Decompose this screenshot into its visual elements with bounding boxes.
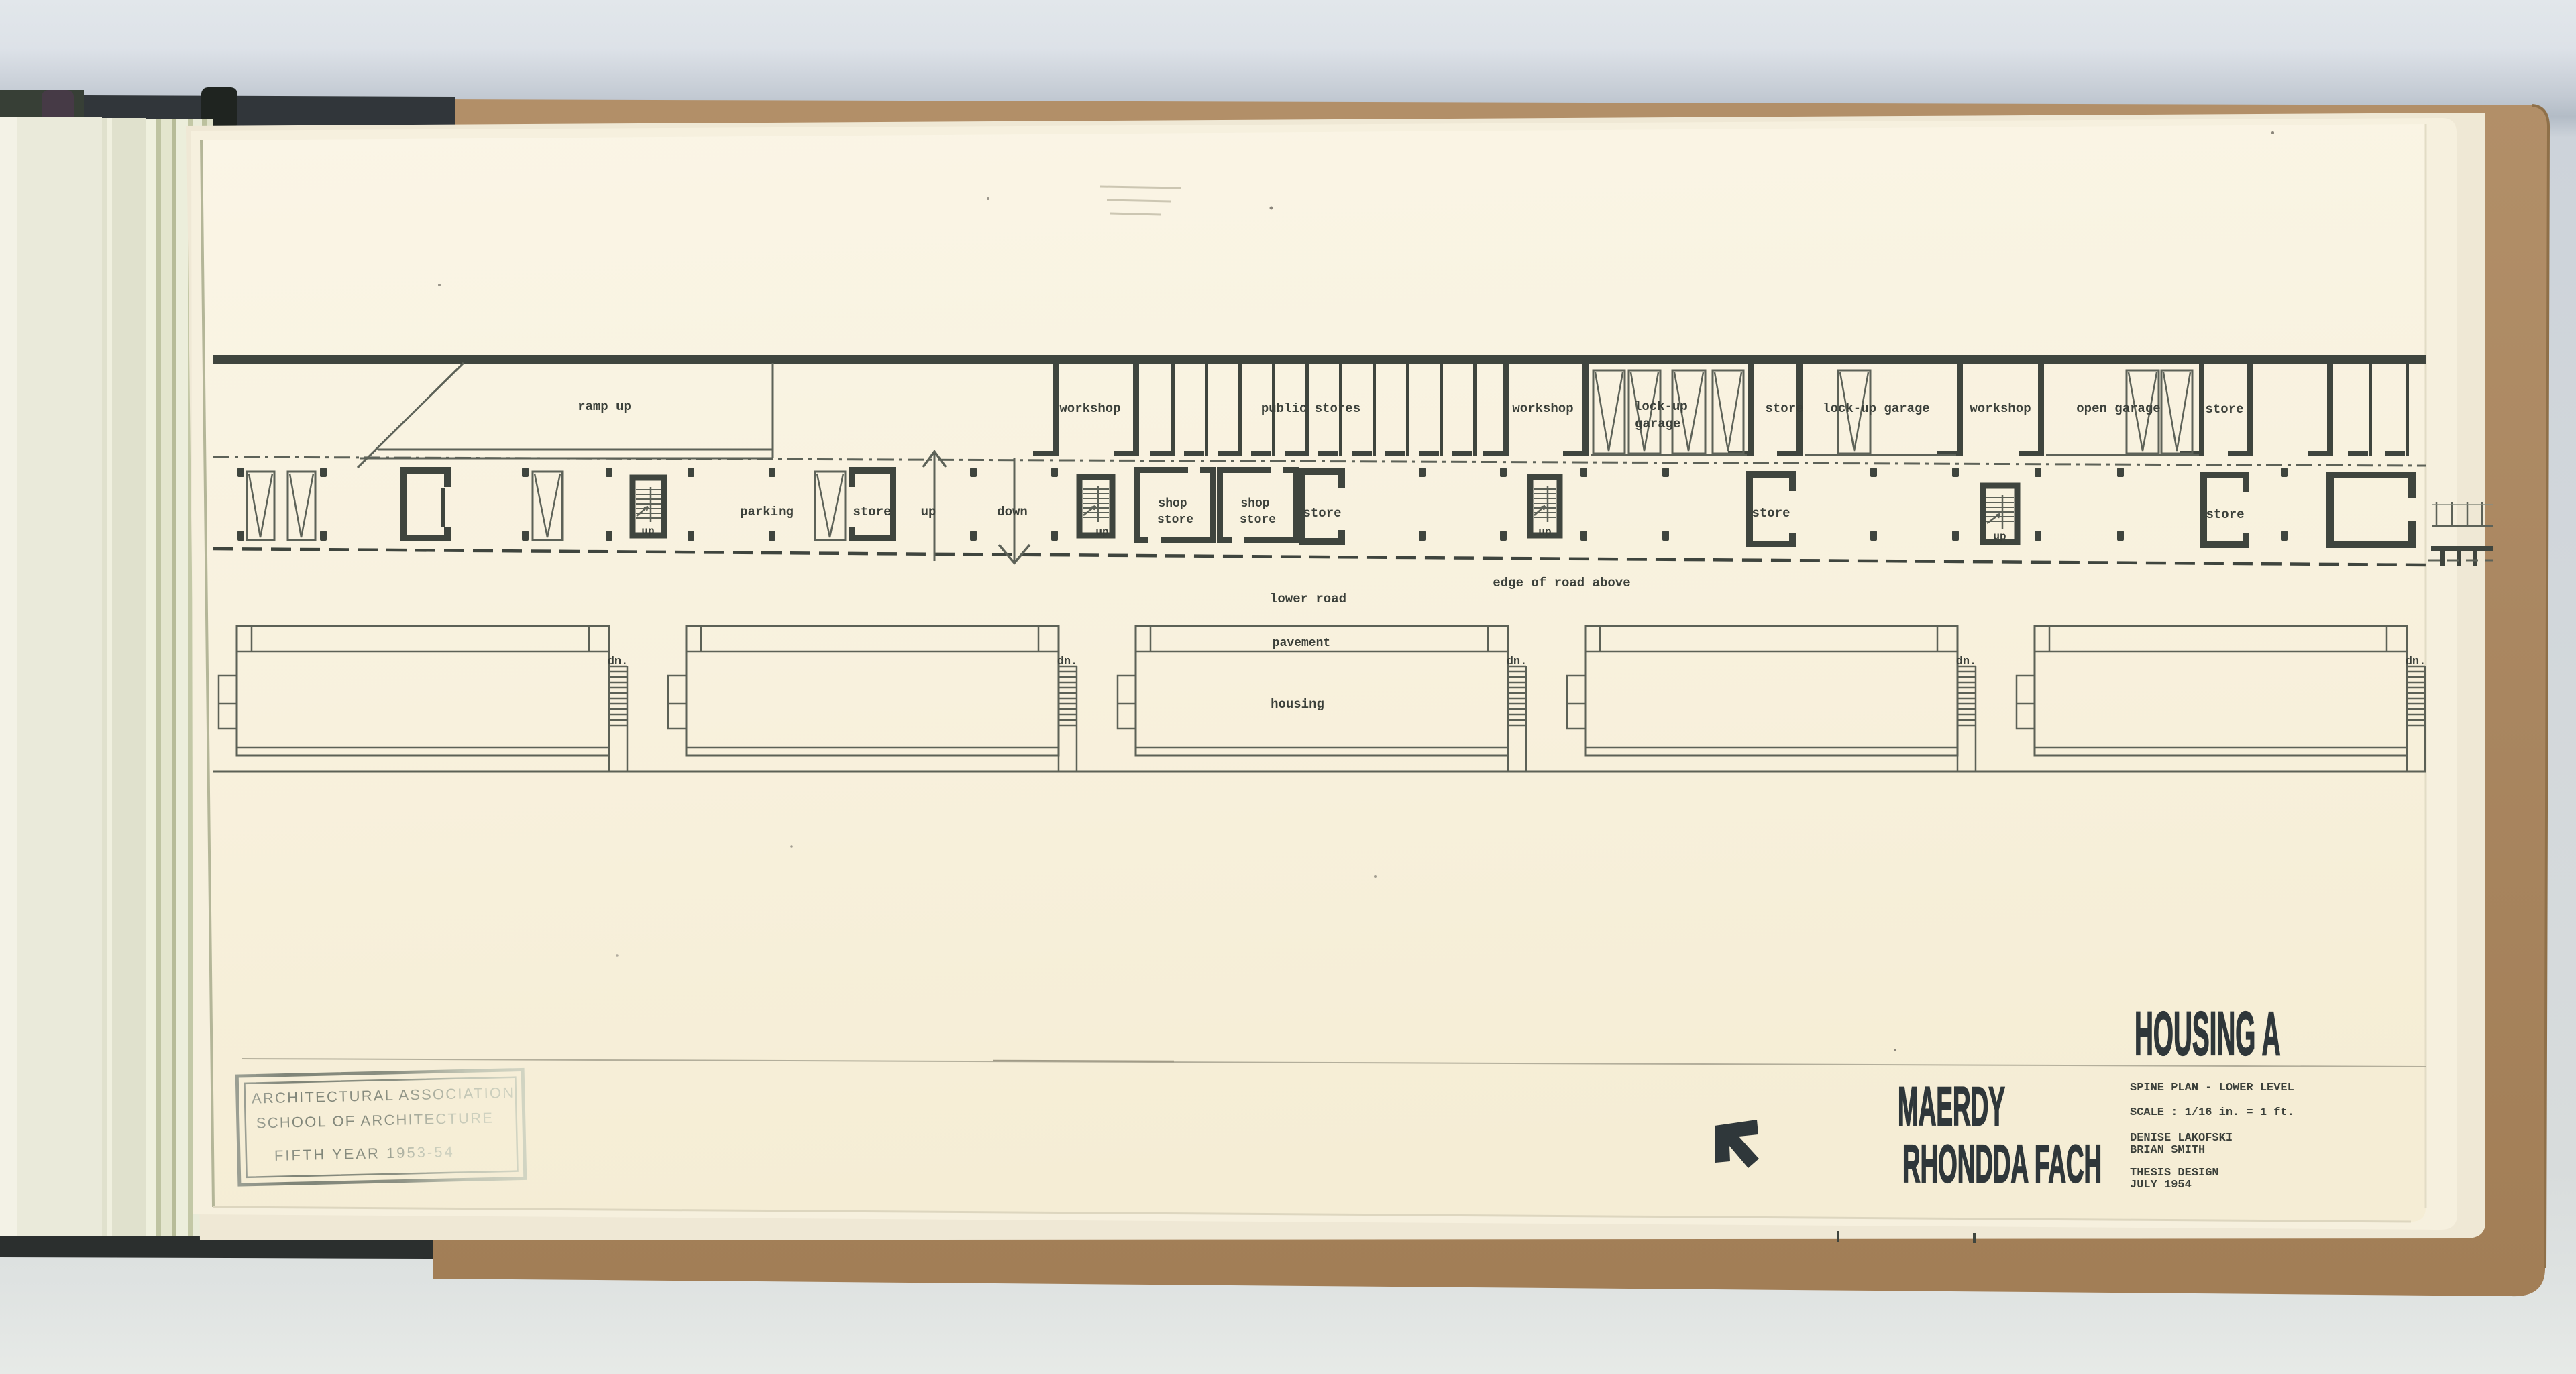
svg-text:store: store	[1765, 401, 1803, 416]
svg-text:dn.: dn.	[608, 655, 629, 668]
svg-text:pavement: pavement	[1273, 637, 1330, 650]
svg-text:open garage: open garage	[2076, 401, 2160, 416]
svg-text:up: up	[921, 505, 936, 519]
svg-text:up: up	[1095, 526, 1108, 538]
svg-text:dn.: dn.	[1956, 655, 1977, 668]
svg-text:lock-up: lock-up	[1634, 399, 1688, 414]
svg-text:store: store	[1752, 506, 1790, 521]
svg-text:ramp up: ramp up	[578, 399, 631, 414]
svg-text:DENISE LAKOFSKI: DENISE LAKOFSKI	[2130, 1132, 2233, 1145]
svg-text:workshop: workshop	[1512, 401, 1573, 416]
svg-text:up: up	[1538, 526, 1551, 538]
svg-text:store: store	[1157, 513, 1193, 527]
svg-text:housing: housing	[1271, 697, 1324, 712]
svg-text:garage: garage	[1635, 417, 1680, 431]
svg-text:workshop: workshop	[1059, 401, 1120, 416]
svg-text:shop: shop	[1158, 497, 1187, 511]
svg-text:edge of road above: edge of road above	[1493, 576, 1630, 590]
svg-text:up: up	[641, 525, 654, 537]
svg-text:dn.: dn.	[2406, 655, 2426, 668]
svg-text:parking: parking	[740, 505, 794, 519]
svg-text:store: store	[2205, 402, 2243, 417]
svg-text:dn.: dn.	[1507, 655, 1527, 668]
svg-text:lower road: lower road	[1270, 592, 1346, 606]
svg-text:store: store	[2206, 507, 2244, 522]
svg-text:BRIAN SMITH: BRIAN SMITH	[2130, 1144, 2205, 1157]
svg-text:store: store	[1303, 506, 1341, 521]
svg-text:public stores: public stores	[1261, 401, 1360, 416]
svg-text:MAERDY: MAERDY	[1898, 1075, 2005, 1137]
svg-text:lock-up garage: lock-up garage	[1823, 401, 1930, 416]
svg-text:up: up	[1993, 531, 2006, 543]
svg-text:RHONDDA FACH: RHONDDA FACH	[1902, 1134, 2102, 1194]
svg-text:store: store	[853, 505, 891, 519]
svg-text:JULY 1954: JULY 1954	[2130, 1179, 2192, 1192]
svg-text:shop: shop	[1240, 497, 1269, 511]
svg-text:dn.: dn.	[1057, 655, 1078, 668]
svg-text:down: down	[997, 505, 1028, 519]
svg-text:SPINE PLAN - LOWER LEVEL: SPINE PLAN - LOWER LEVEL	[2130, 1081, 2294, 1094]
svg-text:THESIS DESIGN: THESIS DESIGN	[2130, 1167, 2219, 1179]
svg-text:workshop: workshop	[1970, 401, 2031, 416]
svg-text:store: store	[1240, 513, 1276, 527]
svg-text:HOUSING A: HOUSING A	[2135, 999, 2281, 1068]
svg-text:SCALE : 1/16 in. = 1 ft.: SCALE : 1/16 in. = 1 ft.	[2130, 1106, 2294, 1119]
